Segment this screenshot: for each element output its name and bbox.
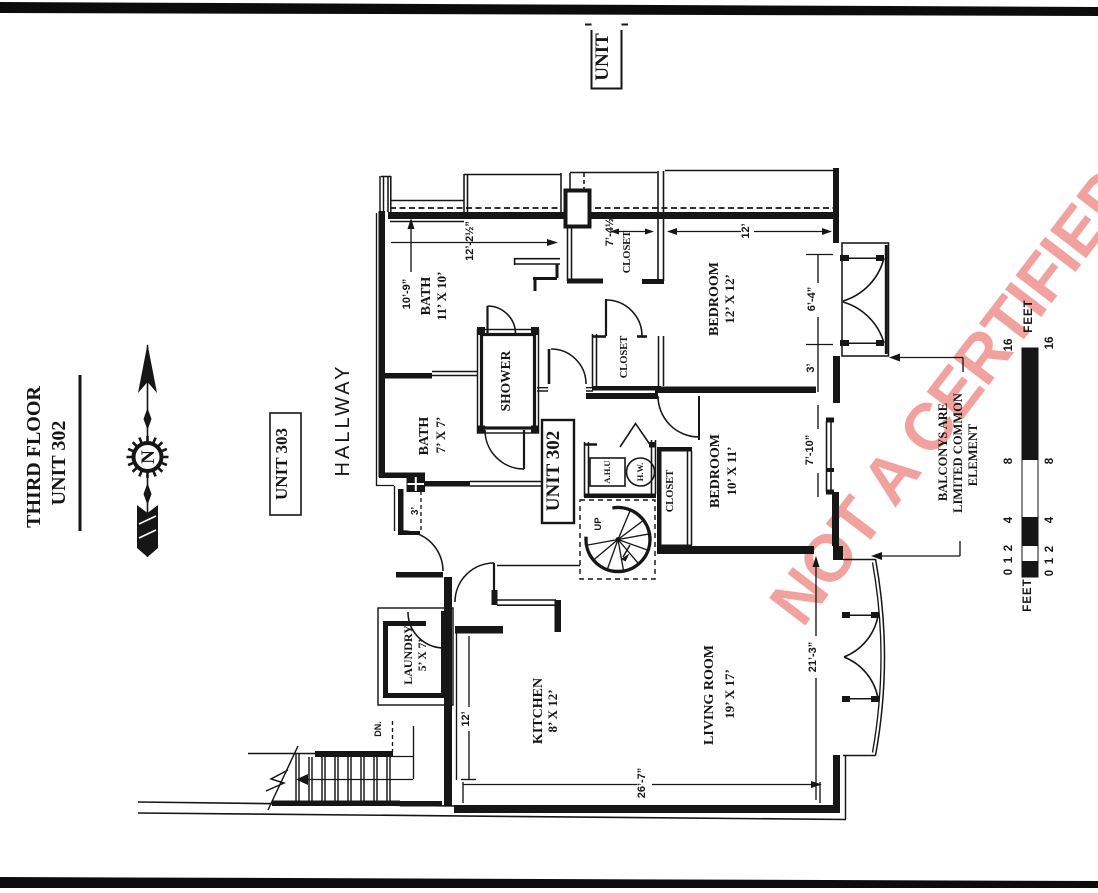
svg-text:6’-4”: 6’-4” [806,287,818,311]
svg-text:4: 4 [1044,516,1056,523]
svg-text:UNIT 303: UNIT 303 [272,428,291,500]
svg-text:CLOSET: CLOSET [622,231,633,274]
svg-text:12’: 12’ [740,223,752,238]
svg-text:12’: 12’ [460,711,472,726]
svg-text:21’-3”: 21’-3” [807,642,819,673]
svg-text:16: 16 [1003,339,1015,352]
svg-text:CLOSET: CLOSET [619,336,630,379]
svg-text:LIMITED COMMON: LIMITED COMMON [951,393,965,513]
svg-text:12’ X 12’: 12’ X 12’ [722,274,737,324]
svg-text:0: 0 [1003,569,1015,575]
svg-text:16: 16 [1044,337,1056,350]
svg-text:BEDROOM: BEDROOM [708,434,723,508]
svg-text:SHOWER: SHOWER [498,350,513,411]
svg-text:BATH: BATH [417,417,432,456]
svg-text:7’-10”: 7’-10” [804,435,816,466]
svg-text:11’ X 10’: 11’ X 10’ [434,272,449,321]
svg-text:N: N [138,450,159,464]
svg-text:12’-2½”: 12’-2½” [464,221,476,261]
svg-text:CLOSET: CLOSET [665,470,676,513]
svg-text:7’-4½: 7’-4½ [604,218,616,246]
svg-text:5’ X 7’: 5’ X 7’ [417,639,429,671]
svg-text:3’: 3’ [410,507,421,516]
svg-text:2: 2 [1044,546,1056,552]
svg-text:1: 1 [1044,557,1056,564]
svg-text:UP: UP [593,517,604,531]
svg-text:BEDROOM: BEDROOM [707,262,722,336]
svg-text:UNIT 302: UNIT 302 [543,431,564,511]
svg-text:8’ X 12’: 8’ X 12’ [545,689,560,732]
svg-text:10’-9”: 10’-9” [401,279,413,310]
svg-text:FEET: FEET [1022,578,1034,611]
svg-text:A.H.U: A.H.U [602,460,612,483]
svg-text:LIVING ROOM: LIVING ROOM [702,645,717,745]
svg-text:2: 2 [1003,545,1015,551]
svg-text:H.W.: H.W. [635,463,645,482]
svg-text:HALLWAY: HALLWAY [332,364,354,477]
svg-text:KITCHEN: KITCHEN [531,678,546,744]
svg-text:8: 8 [1044,457,1056,464]
svg-text:0: 0 [1044,570,1056,576]
svg-text:LAUNDRY: LAUNDRY [401,625,415,685]
svg-text:UNIT 302: UNIT 302 [48,421,70,506]
svg-text:19’ X 17’: 19’ X 17’ [722,669,737,719]
svg-text:10’ X 11’: 10’ X 11’ [724,447,739,496]
svg-text:THIRD FLOOR: THIRD FLOOR [23,386,45,528]
svg-text:ELEMENT: ELEMENT [966,423,980,486]
svg-text:7’ X 7’: 7’ X 7’ [433,417,448,454]
svg-text:FEET: FEET [1023,299,1035,332]
svg-text:BATH: BATH [419,277,434,316]
svg-text:3’: 3’ [805,363,817,372]
svg-text:4: 4 [1003,516,1015,523]
svg-text:8: 8 [1003,457,1015,464]
svg-text:1: 1 [1003,556,1015,563]
svg-text:DN.: DN. [373,721,383,737]
svg-text:26’-7”: 26’-7” [636,768,648,799]
svg-text:BALCONYS ARE: BALCONYS ARE [936,403,950,501]
svg-text:UNIT: UNIT [592,33,613,81]
